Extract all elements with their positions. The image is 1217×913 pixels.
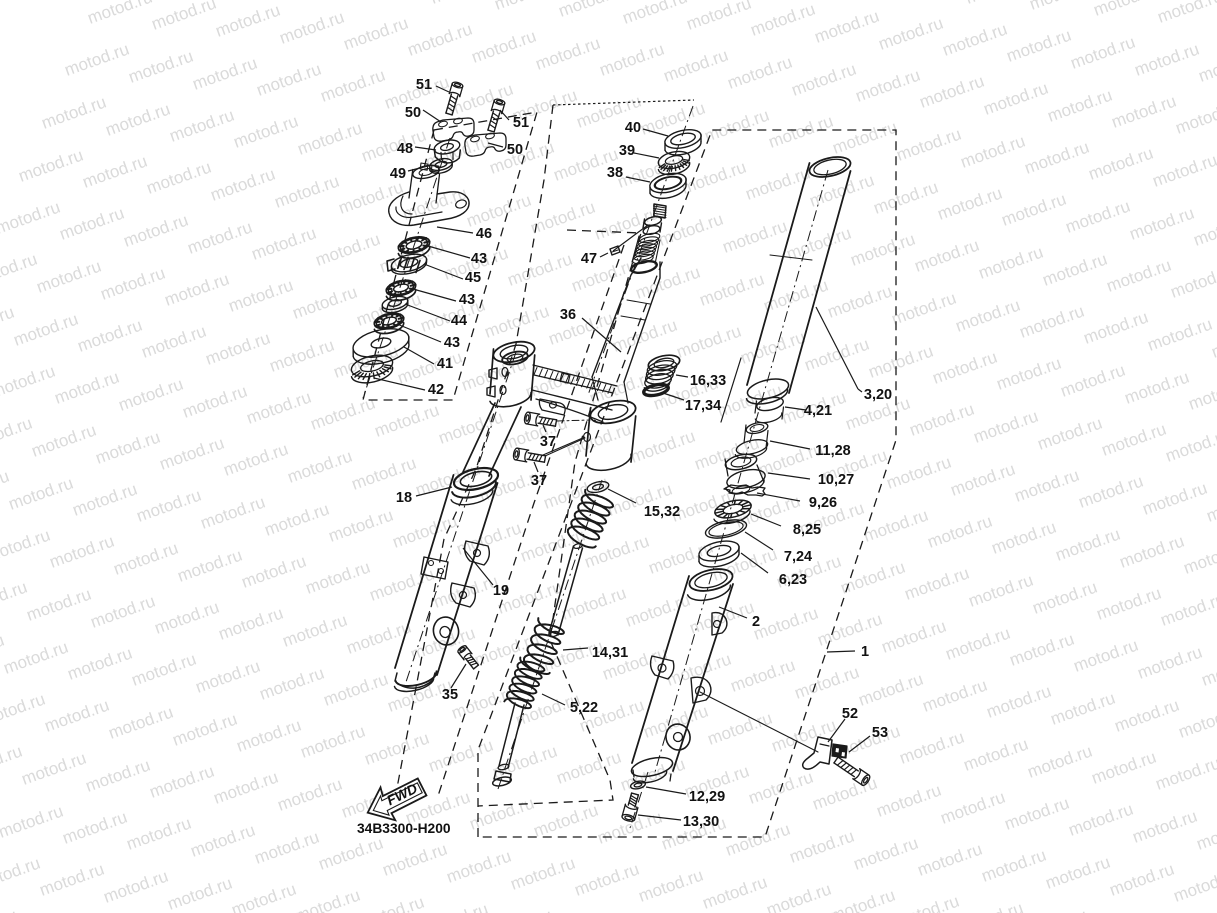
svg-text:41: 41 bbox=[437, 356, 453, 372]
svg-text:18: 18 bbox=[396, 490, 412, 506]
svg-text:35: 35 bbox=[442, 687, 458, 703]
svg-text:49: 49 bbox=[390, 166, 406, 182]
svg-text:37: 37 bbox=[531, 473, 547, 489]
svg-text:44: 44 bbox=[451, 313, 467, 329]
svg-text:5,22: 5,22 bbox=[570, 700, 598, 716]
svg-text:17,34: 17,34 bbox=[685, 398, 721, 414]
svg-text:38: 38 bbox=[607, 165, 623, 181]
svg-text:12,29: 12,29 bbox=[689, 789, 725, 805]
svg-text:51: 51 bbox=[513, 115, 529, 131]
svg-text:52: 52 bbox=[842, 706, 858, 722]
svg-text:51: 51 bbox=[416, 77, 432, 93]
svg-text:2: 2 bbox=[752, 614, 760, 630]
svg-text:50: 50 bbox=[405, 105, 421, 121]
svg-text:43: 43 bbox=[459, 292, 475, 308]
svg-text:1: 1 bbox=[861, 644, 869, 660]
svg-text:34B3300-H200: 34B3300-H200 bbox=[357, 821, 451, 836]
svg-text:48: 48 bbox=[397, 141, 413, 157]
svg-text:11,28: 11,28 bbox=[815, 443, 851, 459]
svg-text:42: 42 bbox=[428, 382, 444, 398]
svg-text:9,26: 9,26 bbox=[809, 495, 837, 511]
svg-text:47: 47 bbox=[581, 251, 597, 267]
svg-text:16,33: 16,33 bbox=[690, 373, 726, 389]
svg-text:36: 36 bbox=[560, 307, 576, 323]
svg-text:6,23: 6,23 bbox=[779, 572, 807, 588]
svg-text:15,32: 15,32 bbox=[644, 504, 680, 520]
svg-text:45: 45 bbox=[465, 270, 481, 286]
svg-text:50: 50 bbox=[507, 142, 523, 158]
svg-text:53: 53 bbox=[872, 725, 888, 741]
svg-text:43: 43 bbox=[444, 335, 460, 351]
svg-text:37: 37 bbox=[540, 434, 556, 450]
svg-text:13,30: 13,30 bbox=[683, 814, 719, 830]
svg-text:8,25: 8,25 bbox=[793, 522, 821, 538]
svg-text:46: 46 bbox=[476, 226, 492, 242]
svg-text:3,20: 3,20 bbox=[864, 387, 892, 403]
svg-text:14,31: 14,31 bbox=[592, 645, 628, 661]
svg-text:7,24: 7,24 bbox=[784, 549, 812, 565]
svg-text:19: 19 bbox=[493, 583, 509, 599]
svg-text:43: 43 bbox=[471, 251, 487, 267]
svg-text:4,21: 4,21 bbox=[804, 403, 832, 419]
svg-text:39: 39 bbox=[619, 143, 635, 159]
svg-text:10,27: 10,27 bbox=[818, 472, 854, 488]
svg-text:40: 40 bbox=[625, 120, 641, 136]
